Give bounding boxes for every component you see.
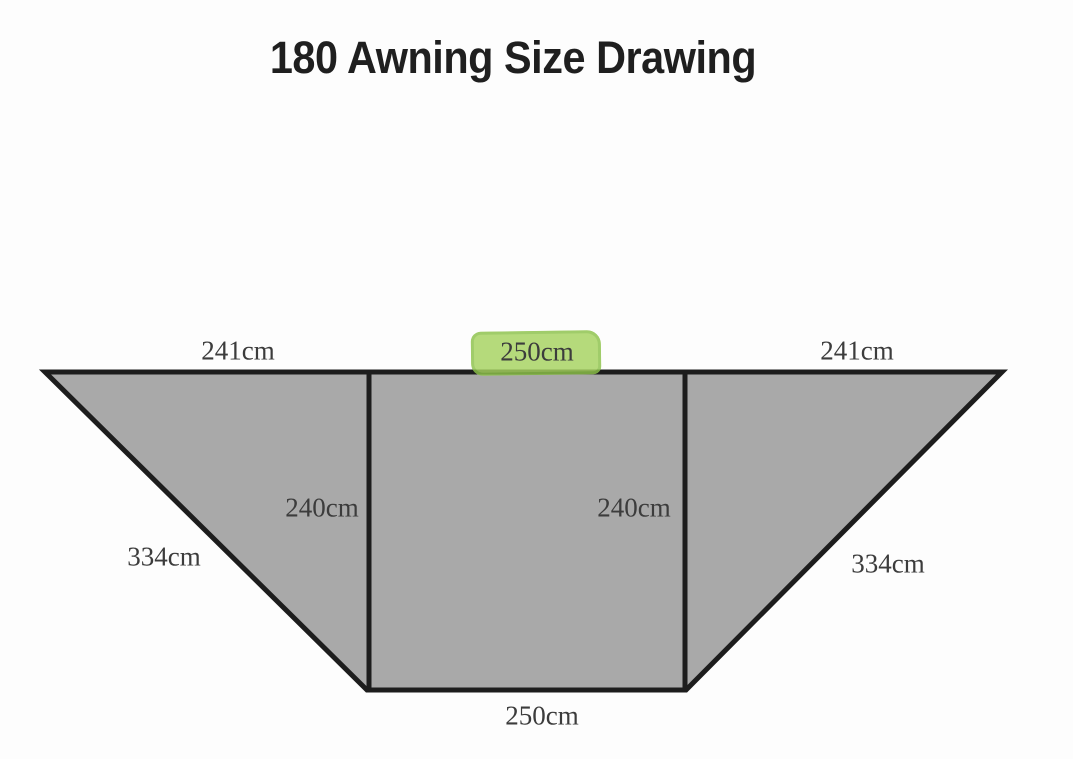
label-bottom-width: 250cm [505, 701, 579, 732]
awning-size-diagram: 180 Awning Size Drawing 241cm 250cm 241c… [0, 0, 1073, 759]
label-top-left-width: 241cm [201, 336, 275, 367]
awning-outline [45, 372, 1002, 690]
label-left-panel-height: 240cm [285, 493, 359, 524]
label-right-slant-length: 334cm [851, 549, 925, 580]
label-top-right-width: 241cm [820, 336, 894, 367]
label-right-panel-height: 240cm [597, 493, 671, 524]
label-top-center-width: 250cm [500, 337, 574, 368]
label-left-slant-length: 334cm [127, 542, 201, 573]
awning-shape [0, 0, 1073, 759]
